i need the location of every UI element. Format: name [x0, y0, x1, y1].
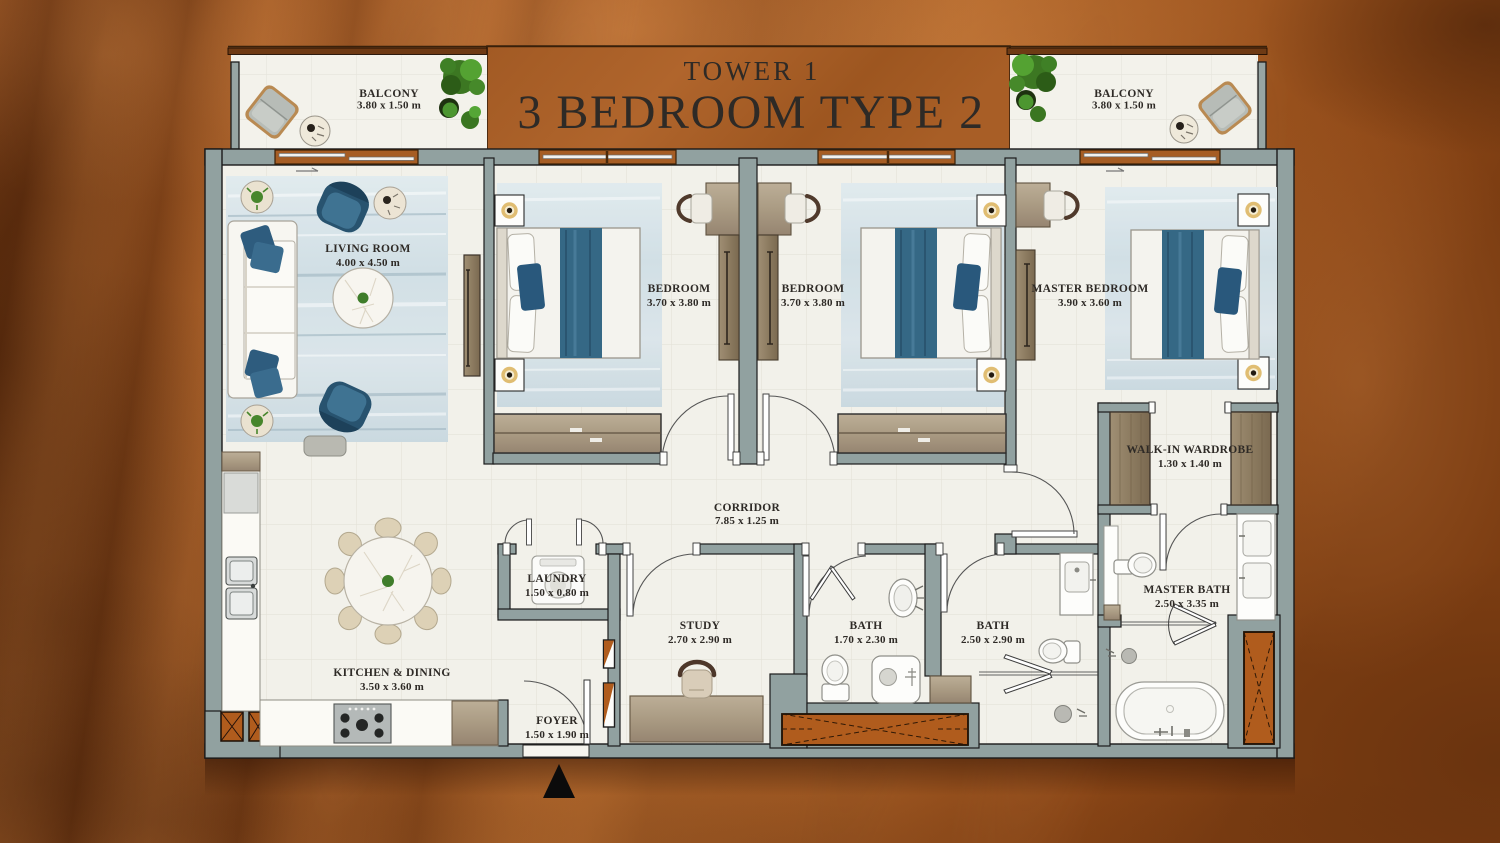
svg-text:BATH: BATH [850, 620, 883, 632]
svg-text:3.50 x 3.60 m: 3.50 x 3.60 m [360, 681, 424, 693]
svg-text:2.50 x 2.90 m: 2.50 x 2.90 m [961, 634, 1025, 646]
svg-text:2.50 x 3.35 m: 2.50 x 3.35 m [1155, 598, 1219, 610]
svg-text:FOYER: FOYER [536, 715, 578, 727]
svg-text:BEDROOM: BEDROOM [648, 283, 711, 295]
svg-text:BEDROOM: BEDROOM [782, 283, 845, 295]
svg-text:3.80 x 1.50 m: 3.80 x 1.50 m [1092, 100, 1156, 112]
svg-text:BALCONY: BALCONY [1094, 88, 1154, 100]
svg-text:3.70 x 3.80 m: 3.70 x 3.80 m [781, 297, 845, 309]
svg-text:BALCONY: BALCONY [359, 88, 419, 100]
svg-text:MASTER BATH: MASTER BATH [1143, 584, 1230, 596]
svg-text:3 BEDROOM TYPE 2: 3 BEDROOM TYPE 2 [517, 86, 984, 139]
svg-text:LAUNDRY: LAUNDRY [527, 573, 587, 585]
svg-text:4.00 x 4.50 m: 4.00 x 4.50 m [336, 257, 400, 269]
svg-text:2.70 x 2.90 m: 2.70 x 2.90 m [668, 634, 732, 646]
svg-text:STUDY: STUDY [680, 620, 721, 632]
svg-text:KITCHEN & DINING: KITCHEN & DINING [333, 667, 450, 679]
svg-text:3.70 x 3.80 m: 3.70 x 3.80 m [647, 297, 711, 309]
svg-text:1.70 x 2.30 m: 1.70 x 2.30 m [834, 634, 898, 646]
svg-text:3.90 x 3.60 m: 3.90 x 3.60 m [1058, 297, 1122, 309]
svg-text:BATH: BATH [977, 620, 1010, 632]
svg-text:1.50 x 1.90 m: 1.50 x 1.90 m [525, 729, 589, 741]
svg-text:1.30 x 1.40 m: 1.30 x 1.40 m [1158, 458, 1222, 470]
svg-text:1.50 x 0.80 m: 1.50 x 0.80 m [525, 587, 589, 599]
svg-text:7.85 x 1.25 m: 7.85 x 1.25 m [715, 515, 779, 527]
svg-text:MASTER BEDROOM: MASTER BEDROOM [1032, 283, 1149, 295]
svg-text:3.80 x 1.50 m: 3.80 x 1.50 m [357, 100, 421, 112]
svg-text:WALK-IN WARDROBE: WALK-IN WARDROBE [1127, 444, 1254, 456]
svg-text:LIVING ROOM: LIVING ROOM [325, 243, 410, 255]
svg-text:TOWER 1: TOWER 1 [684, 56, 821, 86]
svg-text:CORRIDOR: CORRIDOR [714, 502, 781, 514]
